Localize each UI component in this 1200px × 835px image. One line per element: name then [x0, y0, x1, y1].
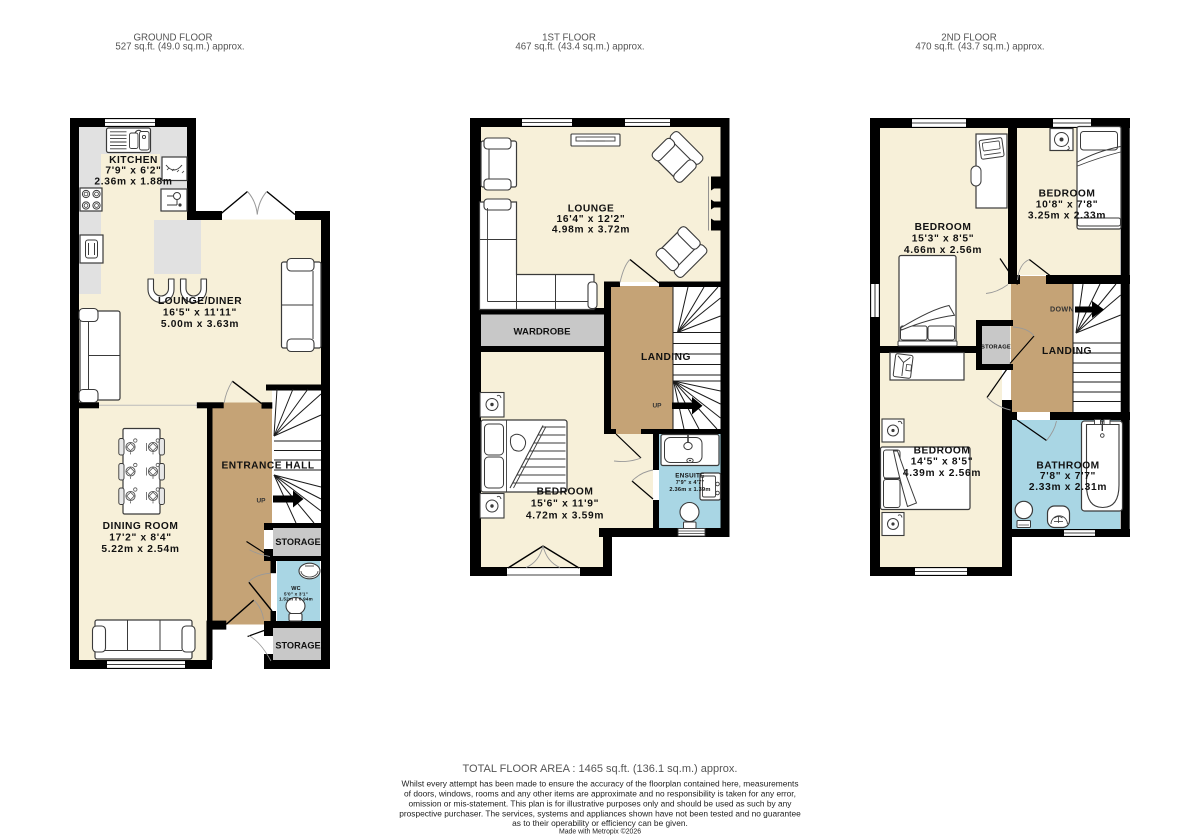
svg-text:Made with Metropix ©2026: Made with Metropix ©2026: [559, 828, 641, 835]
svg-text:LOUNGE/DINER: LOUNGE/DINER: [158, 296, 242, 307]
svg-text:15'6" x 11'9": 15'6" x 11'9": [531, 499, 599, 510]
svg-text:STORAGE: STORAGE: [981, 345, 1011, 351]
svg-text:omission or mis-statement. Thi: omission or mis-statement. This plan is …: [409, 799, 793, 809]
svg-text:17'2" x 8'4": 17'2" x 8'4": [109, 533, 172, 544]
svg-text:7'8" x 7'7": 7'8" x 7'7": [1040, 471, 1096, 482]
svg-text:STORAGE: STORAGE: [275, 537, 320, 547]
svg-text:TOTAL FLOOR AREA : 1465 sq.ft.: TOTAL FLOOR AREA : 1465 sq.ft. (136.1 sq…: [463, 763, 738, 775]
svg-text:16'4" x 12'2": 16'4" x 12'2": [557, 214, 626, 225]
svg-text:BATHROOM: BATHROOM: [1036, 461, 1099, 472]
svg-text:LANDING: LANDING: [1042, 346, 1092, 357]
svg-text:16'5" x 11'11": 16'5" x 11'11": [163, 308, 237, 319]
svg-text:BEDROOM: BEDROOM: [914, 446, 971, 457]
svg-text:467 sq.ft. (43.4 sq.m.) approx: 467 sq.ft. (43.4 sq.m.) approx.: [515, 42, 644, 53]
svg-text:ENSUITE: ENSUITE: [675, 473, 704, 480]
svg-text:LANDING: LANDING: [641, 352, 691, 363]
svg-text:DINING ROOM: DINING ROOM: [103, 521, 179, 532]
svg-text:5.22m x 2.54m: 5.22m x 2.54m: [101, 544, 179, 555]
svg-text:10'8" x 7'8": 10'8" x 7'8": [1036, 200, 1099, 211]
svg-text:4.39m x 2.56m: 4.39m x 2.56m: [903, 468, 981, 479]
svg-text:7'9" x 6'2": 7'9" x 6'2": [105, 166, 161, 177]
svg-text:15'3" x 8'5": 15'3" x 8'5": [912, 234, 975, 245]
svg-text:527 sq.ft. (49.0 sq.m.) approx: 527 sq.ft. (49.0 sq.m.) approx.: [115, 42, 244, 53]
svg-text:DOWN: DOWN: [1050, 305, 1074, 314]
svg-text:4.72m x 3.59m: 4.72m x 3.59m: [526, 511, 604, 522]
svg-text:KITCHEN: KITCHEN: [109, 155, 158, 166]
svg-text:7'9" x 4'7": 7'9" x 4'7": [676, 480, 705, 486]
svg-text:Whilst every attempt has been: Whilst every attempt has been made to en…: [401, 779, 798, 789]
svg-text:LOUNGE: LOUNGE: [568, 204, 615, 215]
svg-text:WARDROBE: WARDROBE: [513, 327, 571, 338]
svg-text:BEDROOM: BEDROOM: [1039, 189, 1096, 200]
svg-text:as to their operability or eff: as to their operability or efficiency ca…: [512, 818, 688, 828]
svg-text:STORAGE: STORAGE: [275, 641, 320, 651]
svg-text:BEDROOM: BEDROOM: [915, 222, 972, 233]
svg-text:2.36m x 1.39m: 2.36m x 1.39m: [669, 487, 710, 493]
svg-text:UP: UP: [256, 498, 266, 505]
svg-text:5.00m x 3.63m: 5.00m x 3.63m: [161, 319, 239, 330]
svg-text:4.66m x 2.56m: 4.66m x 2.56m: [904, 245, 982, 256]
svg-text:UP: UP: [652, 403, 662, 410]
svg-text:470 sq.ft. (43.7 sq.m.) approx: 470 sq.ft. (43.7 sq.m.) approx.: [915, 42, 1044, 53]
svg-text:3.25m x 2.33m: 3.25m x 2.33m: [1028, 211, 1106, 222]
svg-text:14'5" x 8'5": 14'5" x 8'5": [911, 457, 974, 468]
svg-text:4.98m x 3.72m: 4.98m x 3.72m: [552, 225, 630, 236]
svg-text:prospective purchaser. The ser: prospective purchaser. The services, sys…: [399, 809, 801, 819]
svg-text:1.52m x 0.94m: 1.52m x 0.94m: [279, 597, 313, 602]
svg-text:of doors, windows, rooms and a: of doors, windows, rooms and any other i…: [404, 789, 796, 799]
svg-text:ENTRANCE HALL: ENTRANCE HALL: [221, 461, 314, 472]
svg-text:2.33m x 2.31m: 2.33m x 2.31m: [1029, 482, 1107, 493]
svg-text:2.36m x 1.88m: 2.36m x 1.88m: [94, 176, 172, 187]
svg-text:BEDROOM: BEDROOM: [537, 487, 594, 498]
